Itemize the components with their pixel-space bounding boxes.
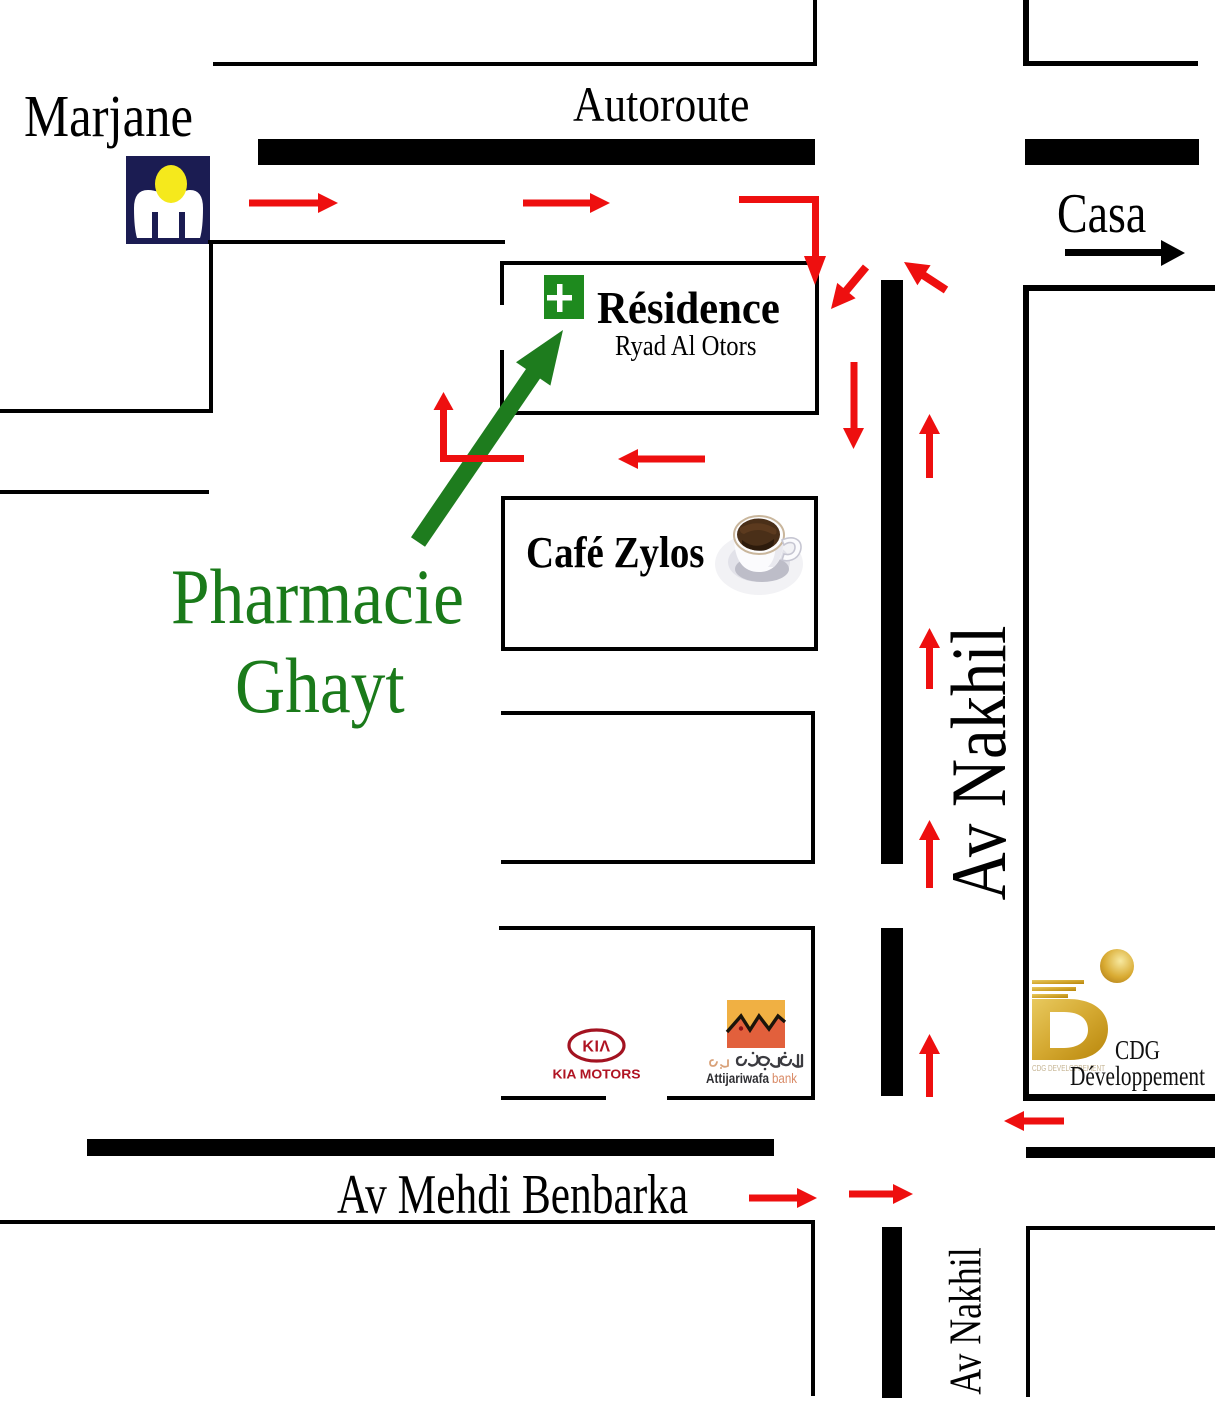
svg-text:Développement: Développement bbox=[1070, 1061, 1205, 1091]
svg-text:bank: bank bbox=[772, 1071, 797, 1086]
svg-text:KIA MOTORS: KIA MOTORS bbox=[553, 1067, 641, 1082]
svg-text:KIΛ: KIΛ bbox=[582, 1039, 610, 1056]
svg-text:Attijariwafa: Attijariwafa bbox=[706, 1071, 769, 1086]
